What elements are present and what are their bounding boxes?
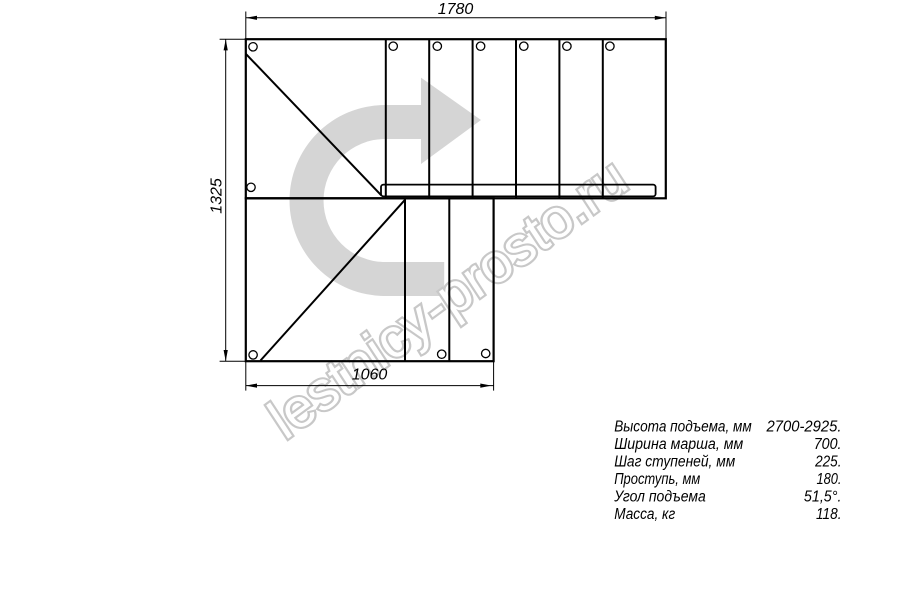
svg-text:51,5°.: 51,5°. bbox=[804, 488, 842, 505]
svg-text:Масса, кг: Масса, кг bbox=[614, 506, 675, 523]
svg-text:1060: 1060 bbox=[352, 367, 388, 384]
svg-text:2700-2925.: 2700-2925. bbox=[766, 418, 842, 435]
svg-text:Шаг ступеней, мм: Шаг ступеней, мм bbox=[614, 453, 735, 470]
svg-text:118.: 118. bbox=[816, 506, 842, 523]
svg-text:Высота подъема, мм: Высота подъема, мм bbox=[614, 418, 752, 435]
svg-text:225.: 225. bbox=[814, 453, 841, 470]
svg-text:700.: 700. bbox=[814, 436, 842, 453]
svg-text:Ширина марша, мм: Ширина марша, мм bbox=[614, 436, 743, 453]
svg-text:1325: 1325 bbox=[209, 178, 226, 214]
svg-text:180.: 180. bbox=[817, 471, 842, 488]
svg-text:Угол подъема: Угол подъема bbox=[613, 488, 706, 505]
svg-text:1780: 1780 bbox=[438, 1, 474, 18]
svg-text:Проступь, мм: Проступь, мм bbox=[614, 471, 700, 488]
